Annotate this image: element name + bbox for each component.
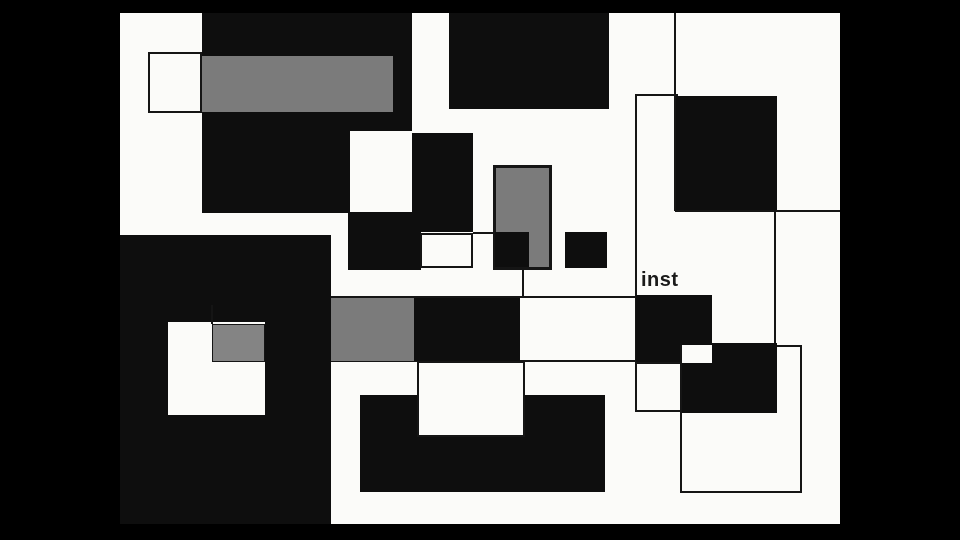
inst-label: inst: [641, 269, 679, 292]
gray-rect-midband: [331, 298, 414, 361]
topright-black-rect: [676, 96, 777, 211]
line-v-below-square: [522, 267, 524, 298]
black-rect-midband: [414, 298, 520, 361]
video-frame: inst: [0, 0, 960, 540]
gray-square-bottomleft: [212, 324, 265, 362]
white-square-mid-upper: [350, 131, 413, 212]
small-black-square-left: [495, 232, 529, 267]
central-black-rect-a: [412, 133, 473, 232]
line-h-top-stub: [635, 94, 678, 96]
line-v-right: [774, 210, 776, 345]
line-v-stub-bottomleft: [211, 305, 213, 324]
central-black-rect-b: [348, 212, 421, 270]
outlined-white-square-topleft: [148, 52, 202, 113]
outlined-white-square-bottom: [635, 362, 682, 412]
outlined-white-rect-bottom: [417, 361, 525, 437]
line-h-topright: [675, 210, 840, 212]
white-square-notch-right: [682, 345, 712, 363]
top-center-black-rect: [449, 13, 609, 109]
line-h-center-stub: [473, 232, 495, 234]
outlined-white-rect-center: [420, 233, 473, 268]
composition-canvas: inst: [0, 0, 960, 540]
small-black-square-right: [565, 232, 607, 268]
